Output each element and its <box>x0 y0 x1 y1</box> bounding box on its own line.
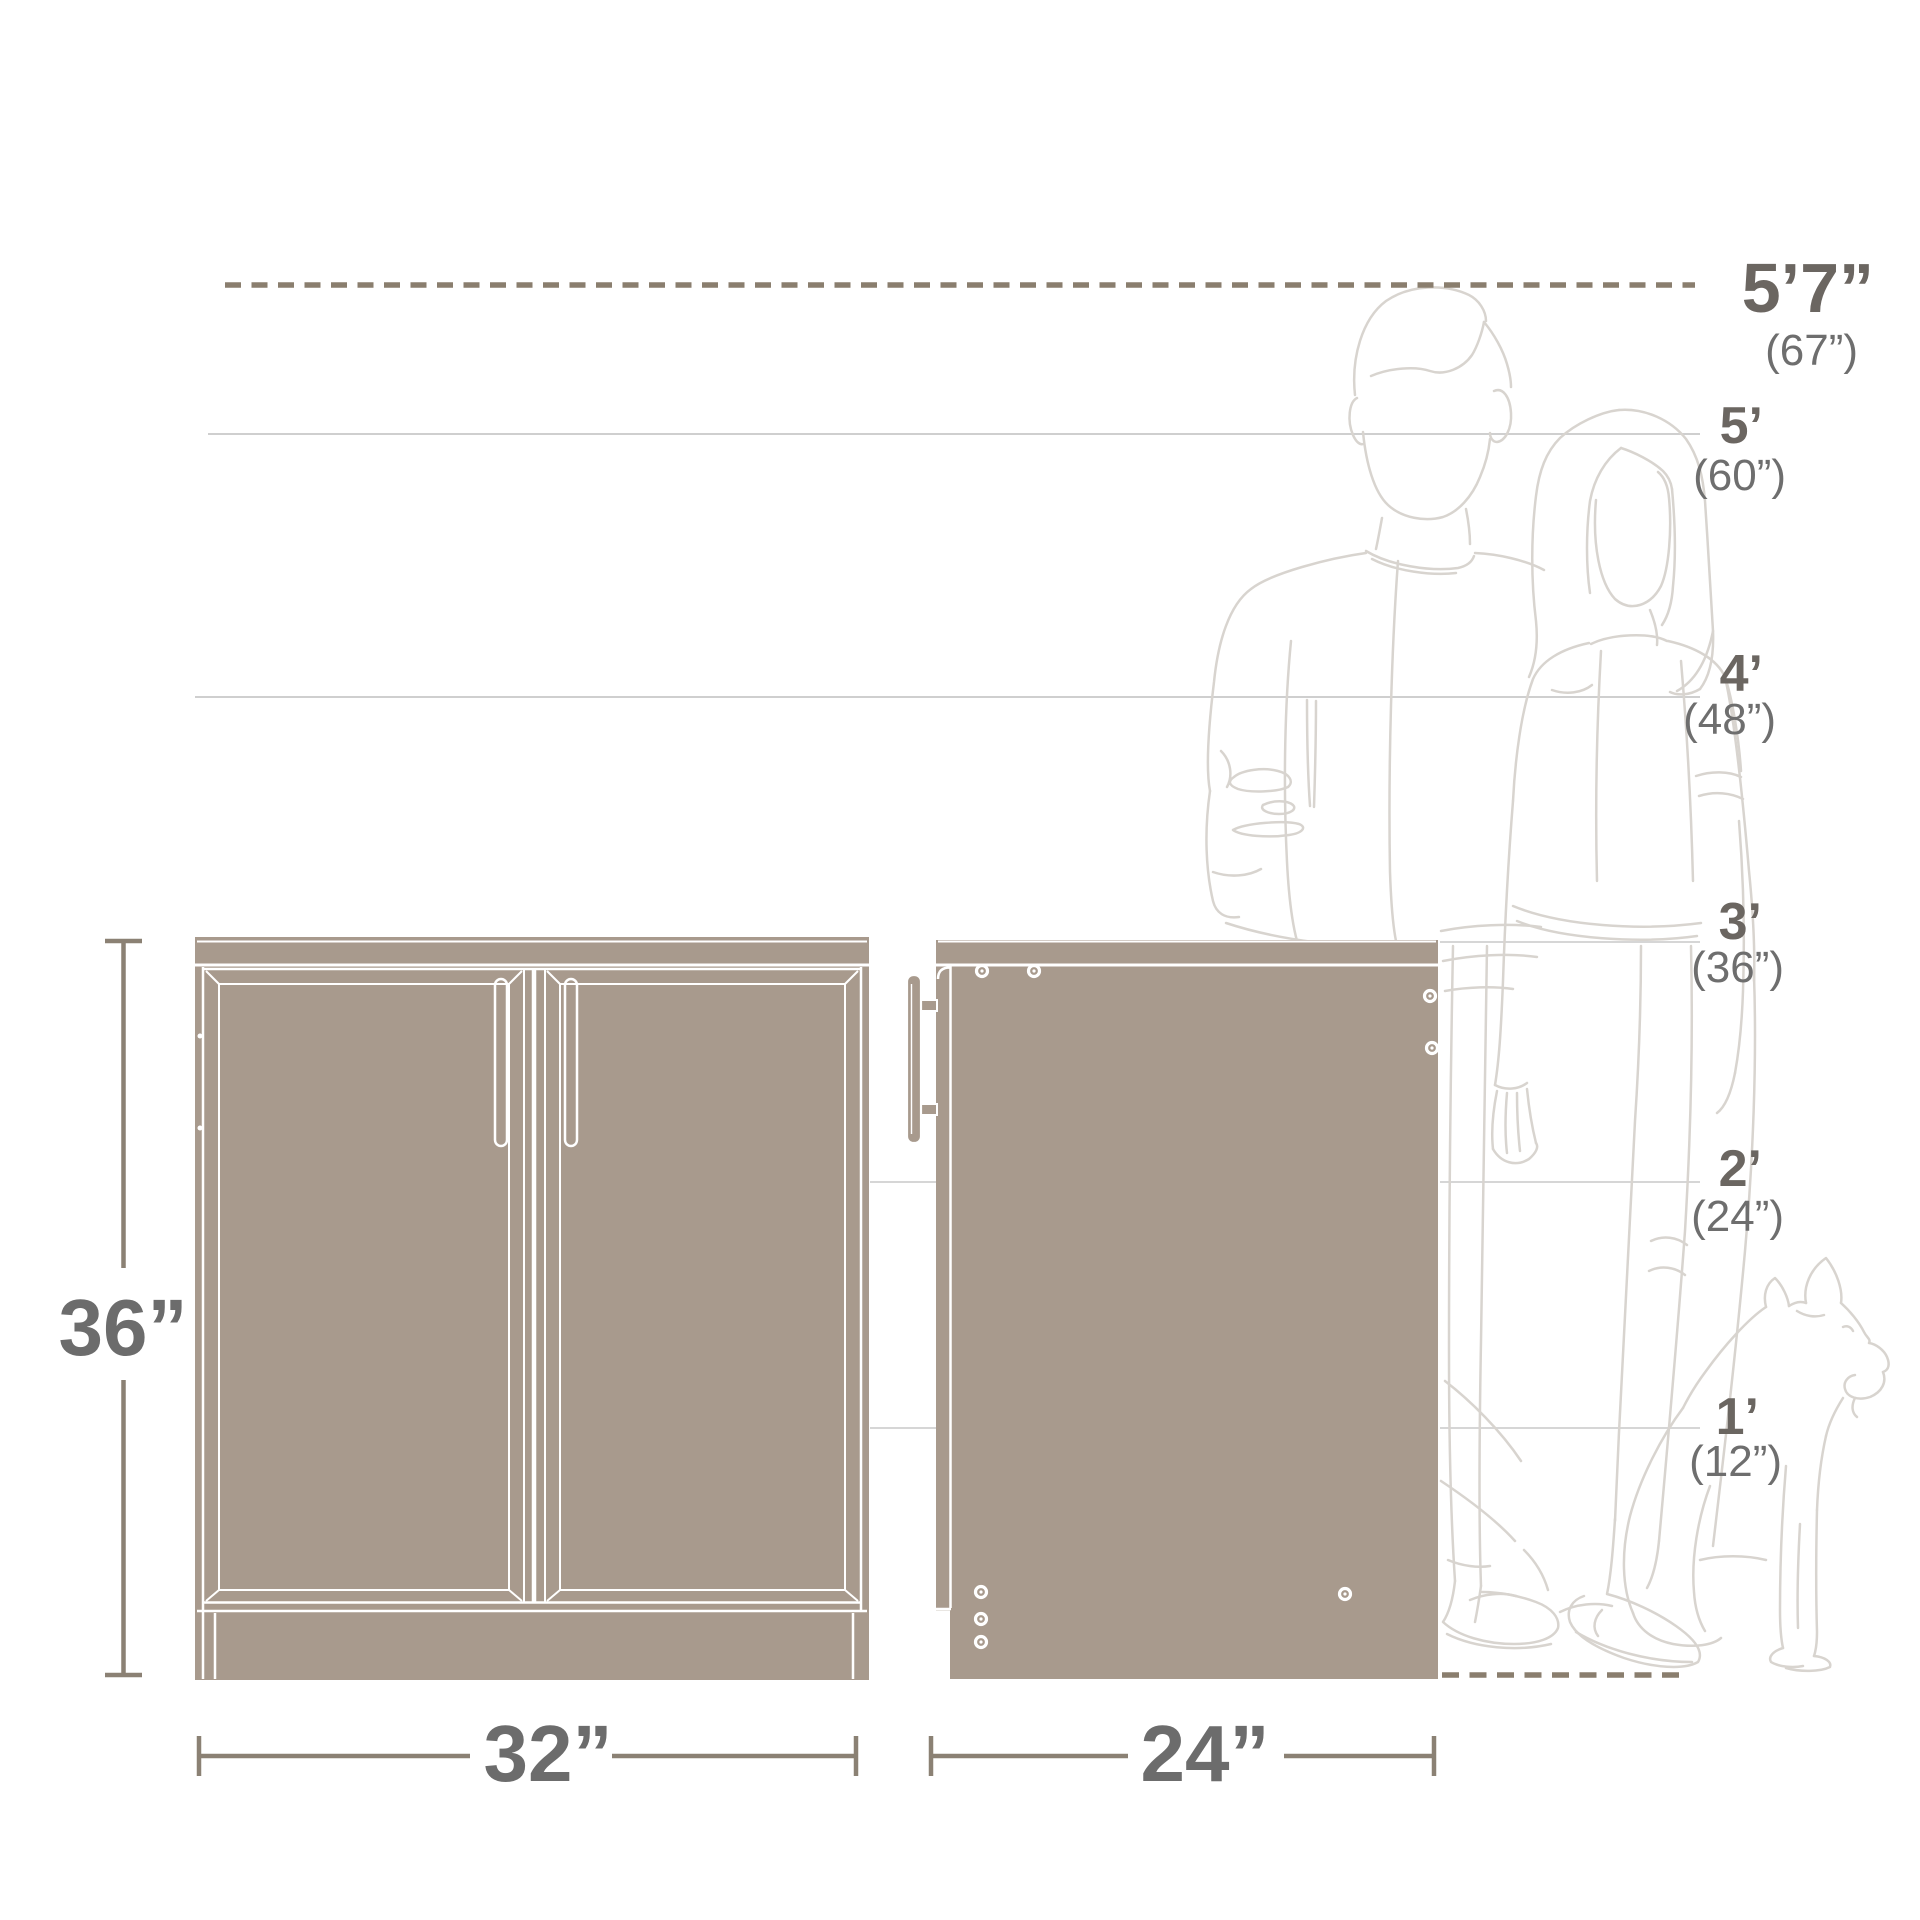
svg-text:(36”): (36”) <box>1691 943 1784 992</box>
svg-text:5’: 5’ <box>1720 397 1763 455</box>
svg-text:2’: 2’ <box>1719 1140 1762 1198</box>
svg-text:(24”): (24”) <box>1691 1192 1784 1241</box>
svg-text:24”: 24” <box>1141 1709 1270 1798</box>
svg-text:(12”): (12”) <box>1689 1437 1782 1486</box>
svg-text:36”: 36” <box>59 1283 188 1372</box>
svg-text:(60”): (60”) <box>1693 451 1786 500</box>
svg-text:(67”): (67”) <box>1765 326 1858 375</box>
svg-text:32”: 32” <box>484 1709 613 1798</box>
svg-text:(48”): (48”) <box>1683 695 1776 744</box>
svg-text:5’7”: 5’7” <box>1742 249 1874 327</box>
